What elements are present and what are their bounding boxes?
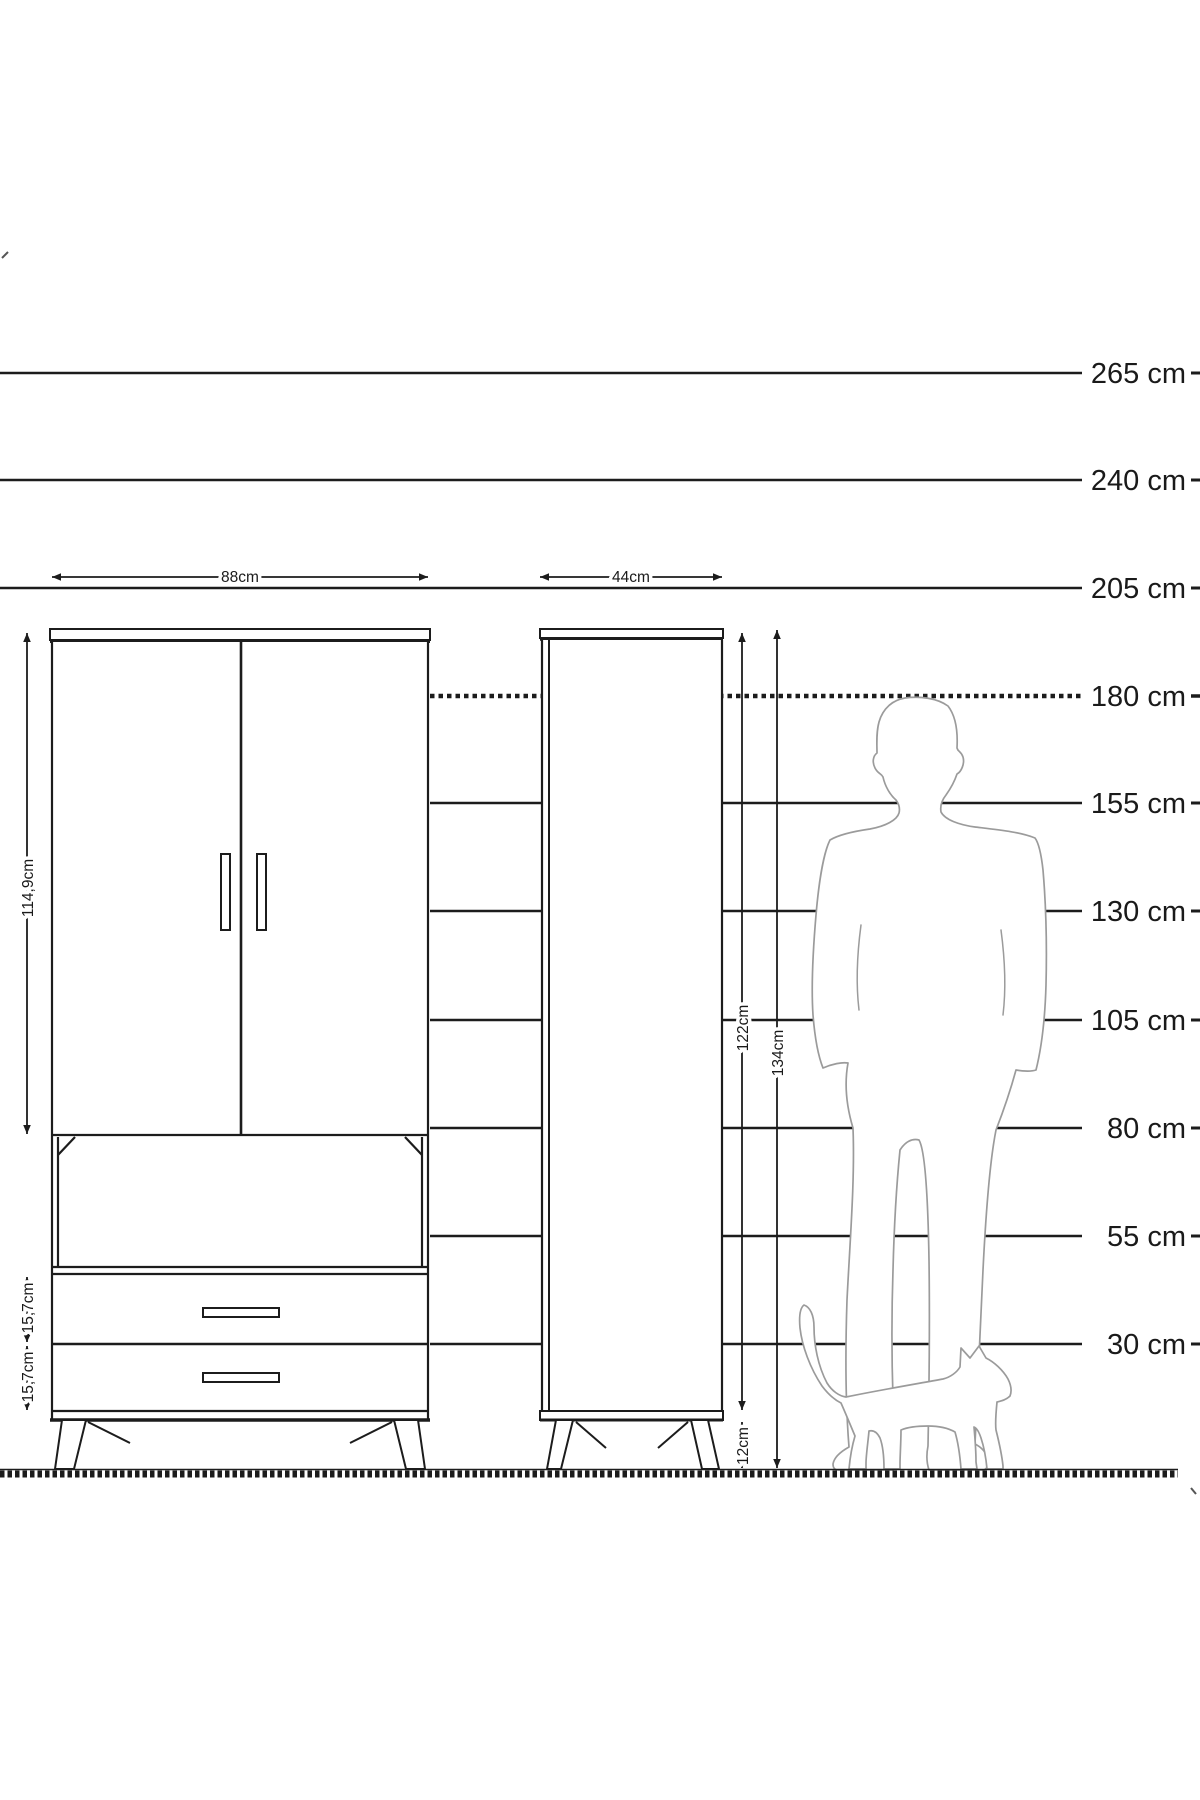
scale-label-55: 55 cm	[1107, 1221, 1186, 1253]
cabinet-left-leg	[547, 1420, 573, 1469]
cabinet-leg-height-label: 12cm	[735, 1427, 752, 1465]
cabinet-width-label: 44cm	[612, 569, 650, 586]
man-silhouette	[812, 697, 1046, 1470]
cabinet-door-height-label: 122cm	[735, 1005, 752, 1052]
scale-line-240: 240 cm	[0, 465, 1200, 497]
cabinet-leg-height-dimension: 12cm	[735, 1422, 752, 1468]
man-outline	[812, 697, 1046, 1470]
cabinet-right-leg-brace	[658, 1422, 688, 1448]
scale-label-130: 130 cm	[1091, 896, 1186, 928]
wardrobe-width-label: 88cm	[221, 569, 259, 586]
drawer1-height-label: 15,7cm	[20, 1283, 37, 1334]
artifact-mark-bottom-right	[1191, 1488, 1196, 1494]
wardrobe-door-height-dimension: 114,9cm	[20, 633, 37, 1134]
drawer1-height-dimension: 15,7cm	[20, 1277, 37, 1342]
drawer2-height-label: 15,7cm	[20, 1352, 37, 1403]
wardrobe-right-leg	[394, 1420, 425, 1469]
drawer1-handle	[203, 1308, 279, 1317]
scale-label-30: 30 cm	[1107, 1329, 1186, 1361]
scale-label-155: 155 cm	[1091, 788, 1186, 820]
scale-label-80: 80 cm	[1107, 1113, 1186, 1145]
drawer2-height-dimension: 15,7cm	[20, 1346, 37, 1410]
furniture-dimension-diagram: 265 cm 240 cm 205 cm 180 cm 155 cm 130 c…	[0, 0, 1200, 1800]
cabinet-body-fill	[543, 640, 721, 1411]
wardrobe-drawing	[50, 629, 430, 1469]
scale-label-240: 240 cm	[1091, 465, 1186, 497]
diagram-svg: 265 cm 240 cm 205 cm 180 cm 155 cm 130 c…	[0, 0, 1200, 1800]
cabinet-total-height-dimension: 134cm	[770, 630, 787, 1468]
tall-cabinet-drawing	[540, 629, 723, 1469]
hatched-ground-line	[0, 1470, 1178, 1475]
scale-label-180: 180 cm	[1091, 681, 1186, 713]
wardrobe-left-leg-brace	[88, 1422, 130, 1443]
wardrobe-left-door-handle	[221, 854, 230, 930]
cabinet-width-dimension: 44cm	[540, 569, 722, 586]
cabinet-top-panel	[540, 629, 723, 638]
cabinet-door-height-dimension: 122cm	[735, 633, 752, 1410]
wardrobe-left-leg	[55, 1420, 86, 1469]
cabinet-left-leg-brace	[576, 1422, 606, 1448]
artifact-mark-top-left	[2, 252, 8, 258]
wardrobe-door-height-label: 114,9cm	[20, 859, 37, 917]
wardrobe-right-door-handle	[257, 854, 266, 930]
scale-line-265: 265 cm	[0, 358, 1200, 390]
wardrobe-right-leg-brace	[350, 1422, 392, 1443]
cabinet-right-leg	[691, 1420, 719, 1469]
scale-label-105: 105 cm	[1091, 1005, 1186, 1037]
wardrobe-width-dimension: 88cm	[52, 569, 428, 586]
drawer2-handle	[203, 1373, 279, 1382]
wardrobe-top-panel	[50, 629, 430, 640]
cabinet-total-height-label: 134cm	[770, 1030, 787, 1077]
scale-label-205: 205 cm	[1091, 573, 1186, 605]
scale-label-265: 265 cm	[1091, 358, 1186, 390]
